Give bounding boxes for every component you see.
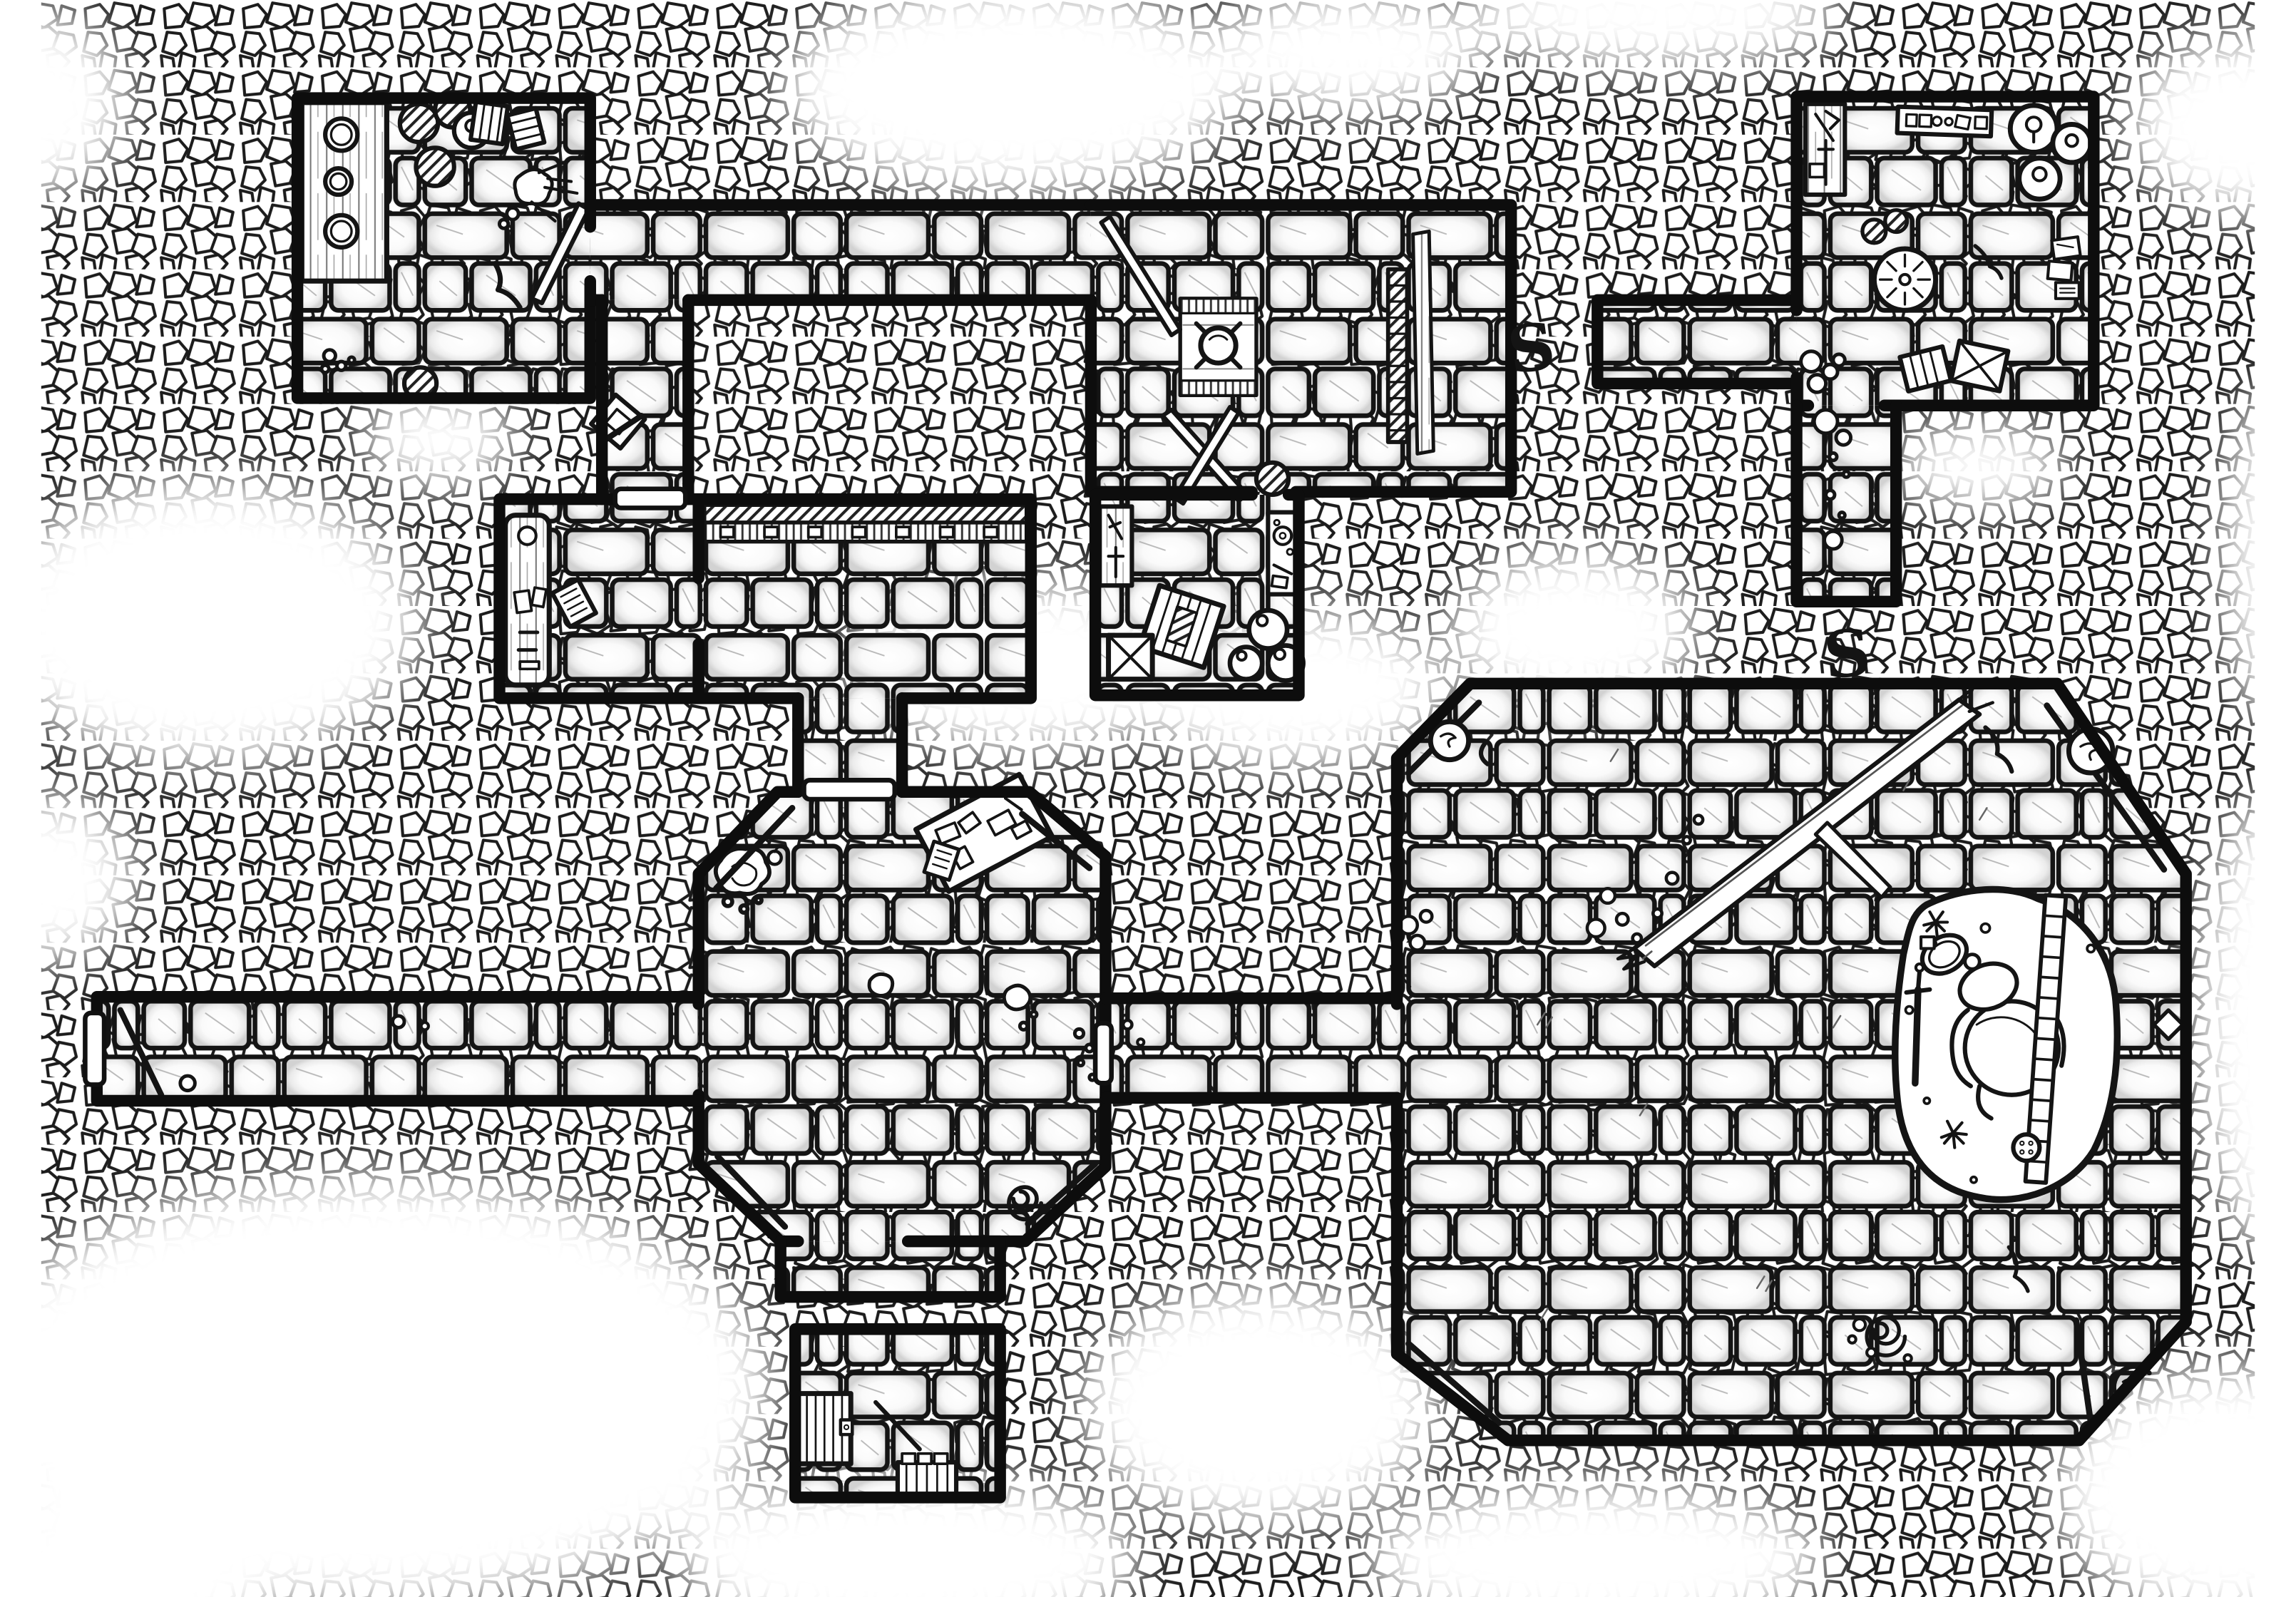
puddle-icon xyxy=(869,974,893,995)
door-icon xyxy=(1095,1023,1112,1083)
dungeon-map-page: S S xyxy=(0,0,2296,1597)
crossed-crate-icon xyxy=(1109,635,1153,679)
wall-ladder-icon xyxy=(1388,269,1408,442)
pebbles-icon xyxy=(393,1016,404,1027)
pebbles-icon xyxy=(1123,1020,1132,1029)
pebbles-icon xyxy=(1137,1039,1144,1045)
door-icon xyxy=(804,780,895,799)
crate-icon xyxy=(1900,346,1951,391)
pebbles-icon xyxy=(180,1076,195,1091)
rune-coin-icon xyxy=(2013,1134,2039,1161)
floor-study-south-strip xyxy=(781,1241,1000,1297)
door-icon xyxy=(615,489,686,508)
mug-icon xyxy=(1921,937,1936,948)
crate-icon xyxy=(508,108,545,150)
secret-door-marker: S xyxy=(1821,615,1874,694)
floor-east-corridor xyxy=(1105,998,1397,1098)
dry-pond xyxy=(1895,889,2117,1199)
pebbles-icon xyxy=(421,1022,429,1029)
slatted-chest-icon xyxy=(898,1454,956,1496)
floor-north-corridor xyxy=(590,205,1091,299)
floor-north-hall xyxy=(1091,205,1511,491)
trapdoor-icon xyxy=(798,1394,852,1464)
plank-icon xyxy=(1413,231,1434,453)
floor-secret-corridor xyxy=(1597,300,1796,384)
flask-shelf-icon xyxy=(1897,107,1992,137)
bunk-shelf-icon xyxy=(704,505,1027,541)
weapon-rack-icon xyxy=(1100,506,1132,585)
dungeon-map: S S xyxy=(0,0,2296,1597)
barrel-icon xyxy=(1256,463,1288,495)
plate-icon xyxy=(325,118,357,247)
crate-icon xyxy=(471,102,508,144)
weapon-rack-icon xyxy=(1805,104,1845,195)
plate-icon xyxy=(518,527,536,545)
cauldron-icon xyxy=(1196,324,1241,368)
door-icon xyxy=(85,1013,104,1085)
crossed-crate-icon xyxy=(1951,341,2008,391)
round-table-icon xyxy=(1874,249,1935,310)
